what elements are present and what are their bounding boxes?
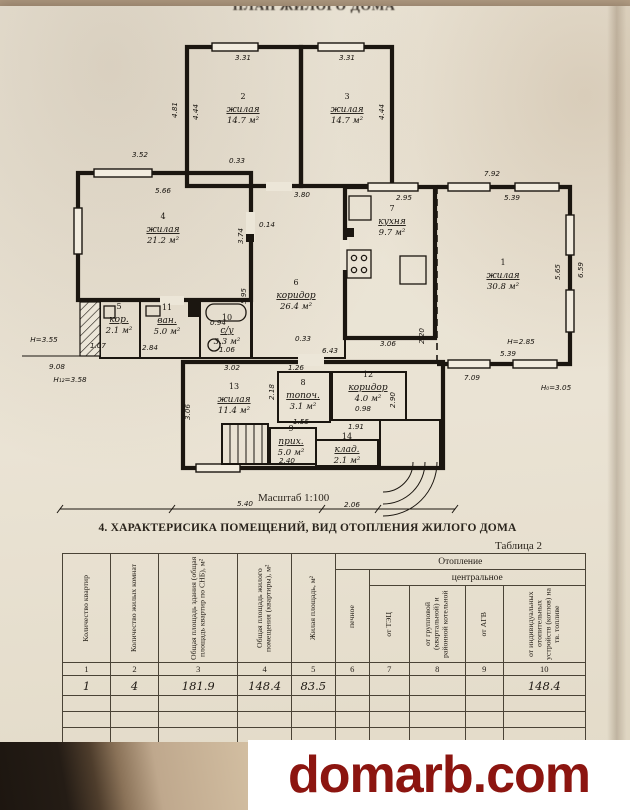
dimension-label: 3.31 — [235, 53, 251, 62]
table-cell: 8 — [409, 663, 465, 676]
dimension-label: 3.31 — [339, 53, 355, 62]
empty-cell — [503, 712, 585, 728]
dimension-label: 4.44 — [191, 104, 200, 120]
col-header-district-boiler: от групповой (квартальной) и районной ко… — [409, 586, 465, 663]
dimension-label: 6.59 — [576, 262, 585, 278]
empty-cell — [238, 712, 291, 728]
dimension-label: 0.94 — [210, 318, 226, 327]
door-openings-group — [160, 182, 349, 366]
empty-cell — [238, 696, 291, 712]
dimension-label: 3.06 — [380, 339, 396, 348]
room-name: жилая — [146, 225, 179, 235]
col-header-chp: от ТЭЦ — [369, 586, 409, 663]
col-header-living-rooms: Количество жилых комнат — [111, 554, 159, 663]
room-area: 30.8 м² — [487, 282, 520, 292]
scanned-document-photo: { "document": { "top_fragment": "ПЛАН ЖИ… — [0, 0, 630, 810]
dimension-label: 1.06 — [219, 345, 235, 354]
room-area: 14.7 м² — [227, 116, 260, 126]
central-group-header: центральное — [369, 570, 585, 586]
table-cell — [465, 676, 503, 696]
dimension-label: 0.98 — [355, 404, 371, 413]
table-cell: 83.5 — [291, 676, 335, 696]
room-number: 13 — [229, 382, 239, 391]
room-name: жилая — [486, 271, 519, 281]
watermark-text: domarb.com — [288, 745, 590, 805]
duct-icon — [188, 302, 200, 317]
table-cell: 148.4 — [238, 676, 291, 696]
table-cell: 10 — [503, 663, 585, 676]
empty-row — [63, 712, 586, 728]
room-name: жилая — [217, 395, 250, 405]
sink-icon — [146, 306, 160, 316]
scale-label: Масштаб 1:100 — [258, 492, 329, 504]
table-cell: 4 — [111, 676, 159, 696]
empty-row — [63, 696, 586, 712]
col-header-living-area: Жилая площадь, м² — [291, 554, 335, 663]
dimension-label: 3.80 — [294, 190, 310, 199]
dimension-label: 2.06 — [344, 500, 360, 509]
room-number: 5 — [116, 302, 121, 311]
dimension-label: 4.81 — [170, 102, 179, 118]
room-name: прих. — [278, 437, 303, 447]
room-number: 3 — [344, 92, 349, 101]
dimension-label: 3.52 — [132, 150, 148, 159]
dimension-label: 6.43 — [322, 346, 338, 355]
empty-cell — [335, 696, 369, 712]
dimension-label: 0.14 — [259, 220, 275, 229]
heating-group-header: Отопление — [335, 554, 585, 570]
empty-cell — [159, 696, 238, 712]
room-labels-group: 1жилая30.8 м²2жилая14.7 м²3жилая14.7 м²4… — [105, 92, 520, 466]
dimension-label: Н=2.85 — [507, 337, 535, 346]
dimension-label: 1.91 — [348, 422, 364, 431]
dimension-label: 9.08 — [49, 362, 65, 371]
empty-cell — [335, 712, 369, 728]
room-number: 14 — [342, 432, 352, 441]
photo-background-corner — [0, 742, 252, 810]
empty-cell — [503, 696, 585, 712]
table-cell: 6 — [335, 663, 369, 676]
room-number: 11 — [162, 303, 172, 312]
room-area: 11.4 м² — [218, 406, 251, 416]
table-cell — [369, 676, 409, 696]
empty-cell — [291, 712, 335, 728]
table-cell: 148.4 — [503, 676, 585, 696]
stairs-icon — [222, 424, 268, 464]
dimension-label: 5.39 — [500, 349, 516, 358]
dimension-label: 1.55 — [293, 417, 309, 426]
table-caption: Таблица 2 — [495, 540, 542, 552]
table-cell: 3 — [159, 663, 238, 676]
dimension-label: 5.65 — [553, 264, 562, 280]
table-cell: 5 — [291, 663, 335, 676]
empty-cell — [159, 712, 238, 728]
col-header-individual-boiler: от индивидуальных отопительных устройств… — [503, 586, 585, 663]
room-area: 2.1 м² — [105, 326, 133, 336]
empty-cell — [369, 696, 409, 712]
dimension-label: 5.66 — [155, 186, 171, 195]
col-header-total-dwelling-area: Общая площадь жилого помещения (квартиры… — [238, 554, 291, 663]
dimension-label: 5.40 — [237, 499, 253, 508]
room-area: 4.0 м² — [354, 394, 382, 404]
porch-steps — [383, 462, 437, 516]
cropped-page-title: ПЛАН ЖИЛОГО ДОМА — [144, 6, 484, 17]
table-cell: 1 — [63, 663, 111, 676]
room-area: 14.7 м² — [331, 116, 364, 126]
room-number: 1 — [500, 258, 505, 267]
dimension-label: 1.07 — [90, 341, 106, 350]
table-cell — [409, 676, 465, 696]
col-header-total-building-area: Общая площадь здания (общая площадь квар… — [159, 554, 238, 663]
empty-cell — [291, 696, 335, 712]
dimension-label: Н=3.55 — [30, 335, 58, 344]
empty-cell — [63, 712, 111, 728]
empty-cell — [111, 712, 159, 728]
watermark-bar: domarb.com — [248, 740, 630, 810]
dimension-label: 0.33 — [295, 334, 311, 343]
table-cell: 1 — [63, 676, 111, 696]
chimney-icon — [246, 234, 254, 242]
windows-group — [74, 43, 574, 472]
room-name: жилая — [226, 105, 259, 115]
room-area: 2.1 м² — [333, 456, 361, 466]
room-area: 5.0 м² — [154, 327, 181, 337]
dimension-label: 5.39 — [504, 193, 520, 202]
table-cell: 7 — [369, 663, 409, 676]
dimension-label: 2.18 — [267, 384, 276, 400]
room-area: 9.7 м² — [379, 228, 406, 238]
characteristics-table: Количество квартир Количество жилых комн… — [62, 553, 586, 744]
dimension-label: 3.06 — [183, 404, 192, 420]
room-number: 6 — [293, 278, 298, 287]
room-area: 21.2 м² — [146, 236, 180, 246]
dimension-label: 2.40 — [279, 456, 295, 465]
dimension-label: 5.95 — [239, 288, 248, 304]
table-cell — [335, 676, 369, 696]
empty-cell — [465, 712, 503, 728]
dimension-labels-group: 3.520.335.663.803.313.314.814.444.447.92… — [30, 53, 585, 509]
room-name: кухня — [378, 217, 406, 227]
room-number: 8 — [300, 378, 305, 387]
dimension-label: 2.95 — [396, 193, 412, 202]
dimension-label: 3.74 — [236, 228, 245, 244]
col-header-stove: печное — [335, 570, 369, 663]
empty-cell — [111, 696, 159, 712]
table-header-row-1: Количество квартир Количество жилых комн… — [63, 554, 586, 570]
data-row: 14181.9148.483.5148.4 — [63, 676, 586, 696]
room-name: коридор — [348, 383, 387, 393]
dimension-label: 2.20 — [417, 328, 426, 344]
room-name: кор. — [109, 315, 129, 325]
room-area: 3.1 м² — [290, 402, 317, 412]
room-number: 7 — [389, 204, 394, 213]
table-cell: 2 — [111, 663, 159, 676]
col-header-agv: от АГВ — [465, 586, 503, 663]
empty-cell — [63, 696, 111, 712]
room-name: коридор — [276, 291, 315, 301]
dimension-label: 3.02 — [224, 363, 240, 372]
dimension-label: 0.33 — [229, 156, 245, 165]
chimney-icon — [345, 228, 354, 237]
empty-cell — [369, 712, 409, 728]
column-number-row: 12345678910 — [63, 663, 586, 676]
room-name: топоч. — [286, 391, 320, 401]
room-name: ван. — [157, 316, 177, 326]
dimension-label: 4.44 — [377, 104, 386, 120]
dimension-label: 7.92 — [484, 169, 500, 178]
dimension-line — [57, 505, 458, 513]
section-heading: 4. ХАРАКТЕРИСИКА ПОМЕЩЕНИЙ, ВИД ОТОПЛЕНИ… — [0, 522, 615, 534]
room-area: 26.4 м² — [279, 302, 313, 312]
room-name: с/у — [220, 326, 234, 336]
room-name: жилая — [330, 105, 363, 115]
floor-plan: 1жилая30.8 м²2жилая14.7 м²3жилая14.7 м²4… — [0, 28, 630, 520]
room-number: 4 — [160, 212, 165, 221]
room-number: 2 — [240, 92, 245, 101]
table-cell: 4 — [238, 663, 291, 676]
dimension-label: 2.84 — [142, 343, 158, 352]
col-header-apartments: Количество квартир — [63, 554, 111, 663]
dimension-label: Н₁₂=3.58 — [53, 375, 87, 384]
empty-cell — [465, 696, 503, 712]
room-name: клад. — [334, 445, 359, 455]
table-cell: 181.9 — [159, 676, 238, 696]
dimension-label: 7.09 — [464, 373, 480, 382]
room-number: 12 — [363, 370, 373, 379]
dimension-label: Н₀=3.05 — [541, 383, 572, 392]
empty-cell — [409, 696, 465, 712]
empty-cell — [409, 712, 465, 728]
table-cell: 9 — [465, 663, 503, 676]
dimension-label: 2.90 — [388, 392, 397, 408]
dimension-label: 1.26 — [288, 363, 304, 372]
